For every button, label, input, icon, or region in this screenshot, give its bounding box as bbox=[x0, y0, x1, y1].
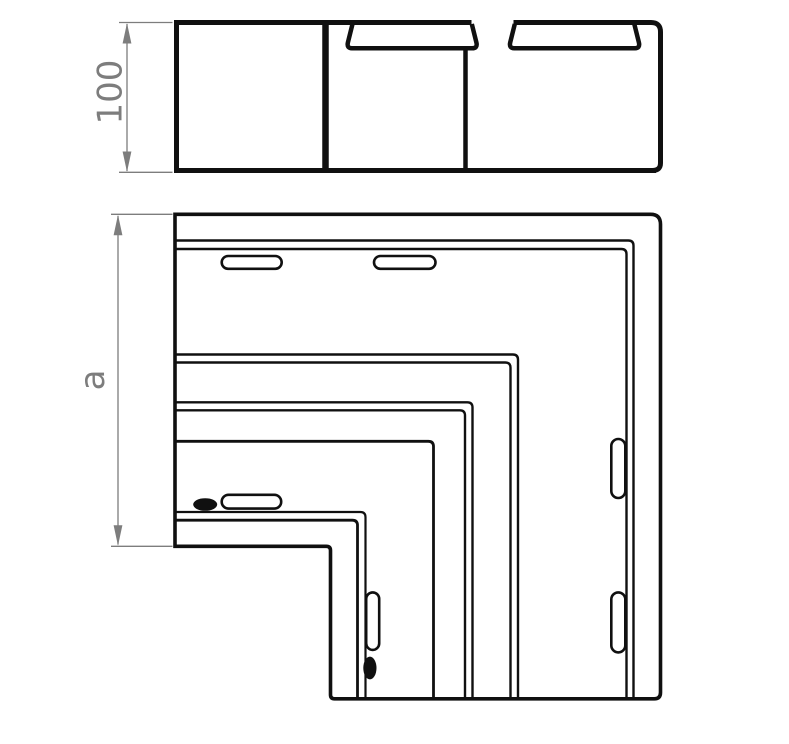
drawing-page: 100 a bbox=[0, 0, 789, 744]
dimension-100: 100 bbox=[91, 23, 173, 173]
contour-2-outer bbox=[175, 355, 518, 699]
contour-5-outer bbox=[175, 512, 366, 699]
locating-dot-arm bbox=[193, 498, 217, 511]
contour-2-inner bbox=[175, 363, 511, 699]
contour-4 bbox=[175, 441, 434, 699]
locating-dot-leg bbox=[363, 657, 376, 680]
technical-drawing: 100 a bbox=[0, 0, 789, 744]
outer-contour bbox=[175, 214, 661, 699]
mounting-slot-top-1 bbox=[222, 256, 282, 269]
arrowhead-up-icon bbox=[114, 215, 123, 236]
mounting-slot-right-2 bbox=[611, 592, 625, 652]
arrowhead-down-icon bbox=[123, 152, 132, 173]
contour-3-outer bbox=[175, 402, 473, 699]
contour-1-outer bbox=[175, 241, 634, 699]
top-view bbox=[177, 23, 661, 171]
dimension-a-label: a bbox=[73, 370, 113, 391]
top-view-outline-left bbox=[177, 23, 657, 171]
mounting-slot-right-1 bbox=[611, 439, 625, 498]
contour-3-inner bbox=[175, 410, 465, 699]
cover-clip-right bbox=[510, 24, 639, 48]
arrowhead-up-icon bbox=[123, 23, 132, 44]
mounting-slot-inner-arm bbox=[222, 495, 282, 509]
mounting-slot-top-2 bbox=[374, 256, 436, 269]
dimension-a: a bbox=[73, 214, 173, 546]
mounting-slot-inner-leg bbox=[366, 592, 379, 650]
contour-1-inner bbox=[175, 249, 627, 699]
plan-view bbox=[175, 214, 661, 699]
dimension-100-label: 100 bbox=[91, 60, 131, 125]
cover-clip-left bbox=[348, 24, 477, 48]
arrowhead-down-icon bbox=[114, 525, 123, 546]
